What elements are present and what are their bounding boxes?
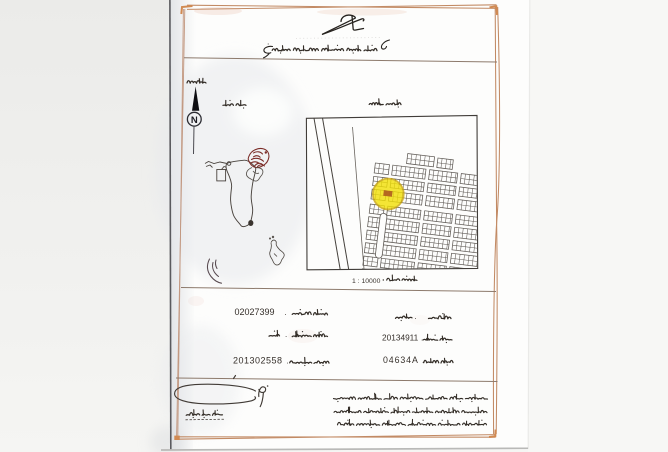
svg-text:.: . bbox=[285, 308, 287, 317]
svg-text:1 : 10000: 1 : 10000 bbox=[352, 278, 381, 285]
svg-text:201302558: 201302558 bbox=[233, 356, 283, 366]
svg-text:.: . bbox=[422, 356, 424, 365]
svg-text:.: . bbox=[415, 312, 417, 321]
svg-text:04634A: 04634A bbox=[383, 355, 419, 365]
svg-text:N: N bbox=[191, 115, 198, 126]
svg-text:.: . bbox=[421, 334, 423, 343]
svg-text:.: . bbox=[287, 357, 289, 366]
svg-text:02027399: 02027399 bbox=[235, 307, 275, 317]
svg-text:20134911: 20134911 bbox=[382, 333, 419, 343]
svg-text:.: . bbox=[285, 330, 287, 339]
